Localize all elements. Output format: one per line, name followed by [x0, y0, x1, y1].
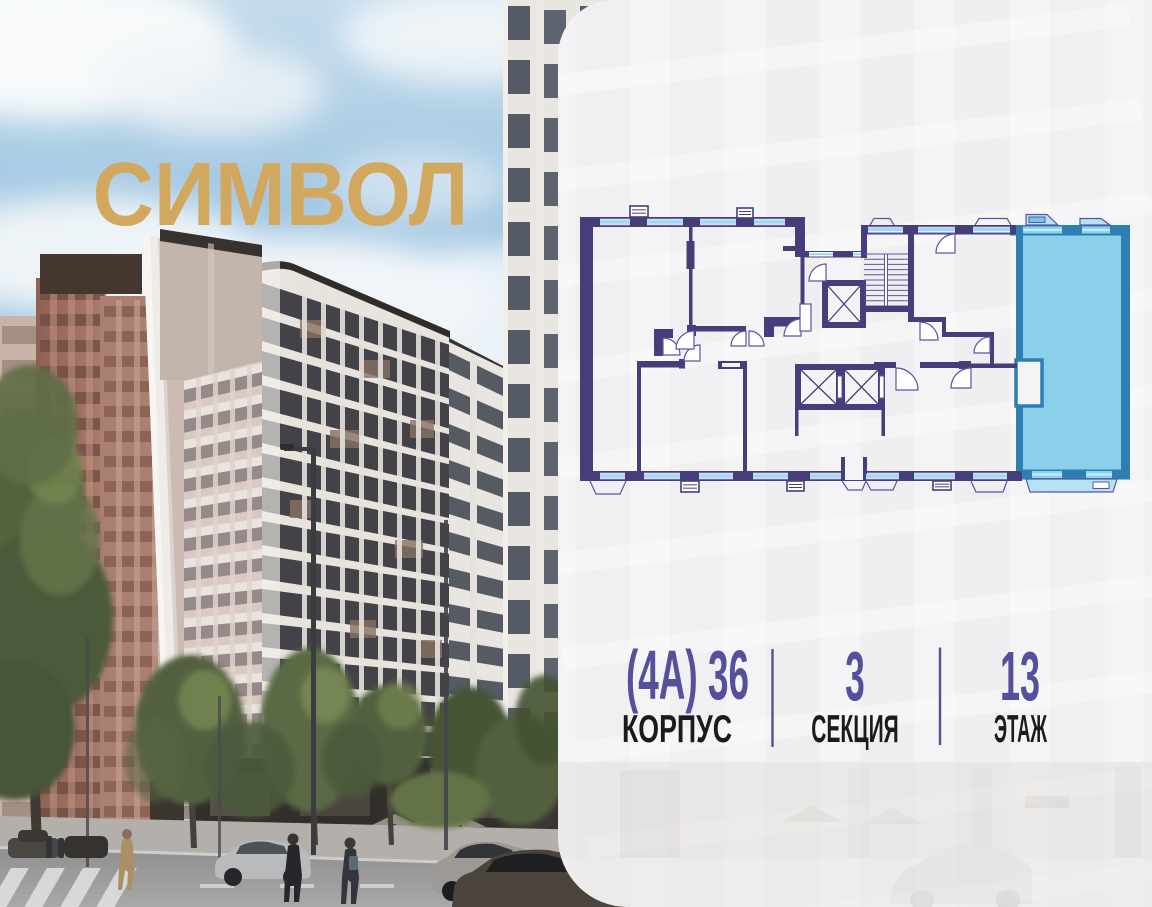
svg-text:ЭТАЖ: ЭТАЖ: [994, 708, 1047, 751]
svg-text:13: 13: [1000, 637, 1040, 715]
svg-text:(4А) 36: (4А) 36: [626, 636, 749, 714]
svg-text:3: 3: [845, 637, 865, 715]
svg-text:СЕКЦИЯ: СЕКЦИЯ: [811, 708, 899, 751]
svg-text:КОРПУС: КОРПУС: [622, 708, 732, 751]
